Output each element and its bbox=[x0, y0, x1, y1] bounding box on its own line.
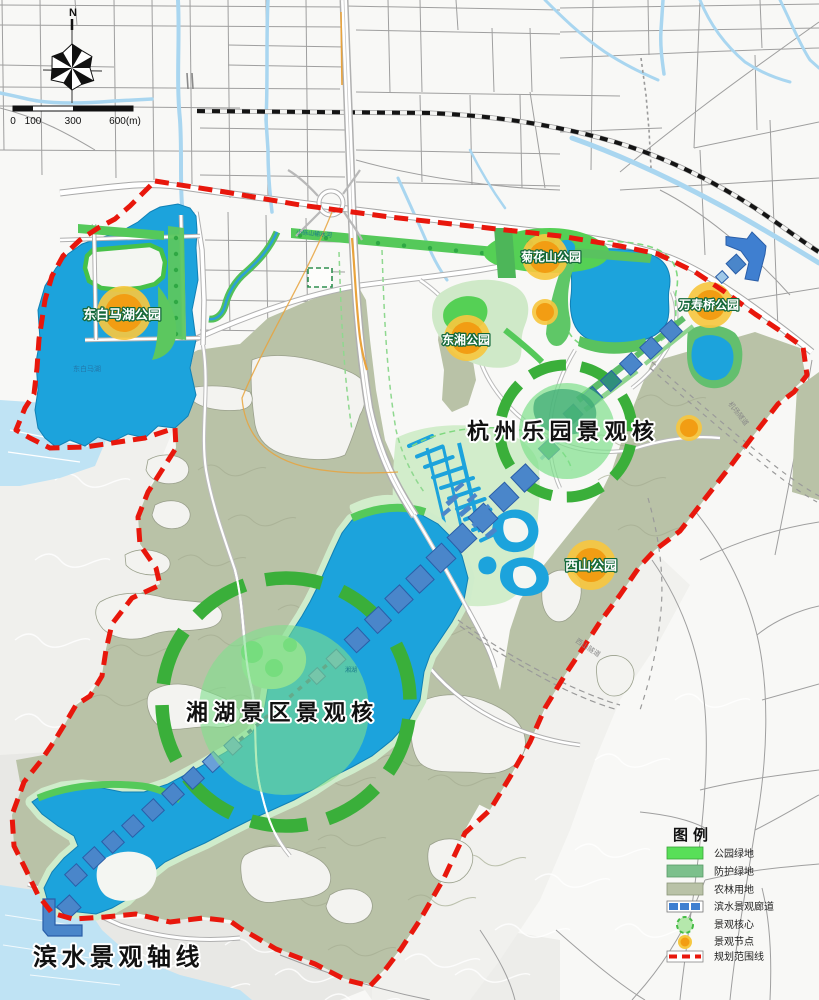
svg-text:滨水景观轴线: 滨水景观轴线 bbox=[33, 943, 204, 971]
svg-text:西山公园: 西山公园 bbox=[565, 558, 617, 573]
svg-text:万寿桥公园: 万寿桥公园 bbox=[678, 297, 739, 312]
svg-text:防护绿地: 防护绿地 bbox=[714, 865, 754, 878]
svg-text:东白马湖公园: 东白马湖公园 bbox=[83, 307, 161, 322]
svg-text:0: 0 bbox=[10, 116, 16, 127]
svg-text:东白马湖: 东白马湖 bbox=[73, 364, 101, 373]
svg-text:湘湖: 湘湖 bbox=[345, 666, 357, 674]
svg-text:杭州乐园景观核: 杭州乐园景观核 bbox=[467, 419, 660, 444]
svg-text:N: N bbox=[69, 7, 77, 19]
svg-text:景观核心: 景观核心 bbox=[714, 918, 754, 931]
svg-text:300: 300 bbox=[65, 116, 82, 127]
svg-text:东湘公园: 东湘公园 bbox=[442, 332, 490, 347]
svg-text:600(m): 600(m) bbox=[109, 116, 141, 127]
svg-text:100: 100 bbox=[25, 116, 42, 127]
svg-text:公园绿地: 公园绿地 bbox=[714, 847, 754, 860]
svg-text:滨水景观廊道: 滨水景观廊道 bbox=[714, 900, 774, 913]
svg-text:菊花山公园: 菊花山公园 bbox=[520, 249, 581, 264]
svg-text:规划范围线: 规划范围线 bbox=[714, 950, 764, 963]
svg-text:湘湖景区景观核: 湘湖景区景观核 bbox=[186, 700, 379, 725]
svg-text:景观节点: 景观节点 bbox=[714, 936, 754, 948]
svg-text:农林用地: 农林用地 bbox=[714, 883, 754, 896]
svg-text:图例: 图例 bbox=[673, 826, 713, 844]
